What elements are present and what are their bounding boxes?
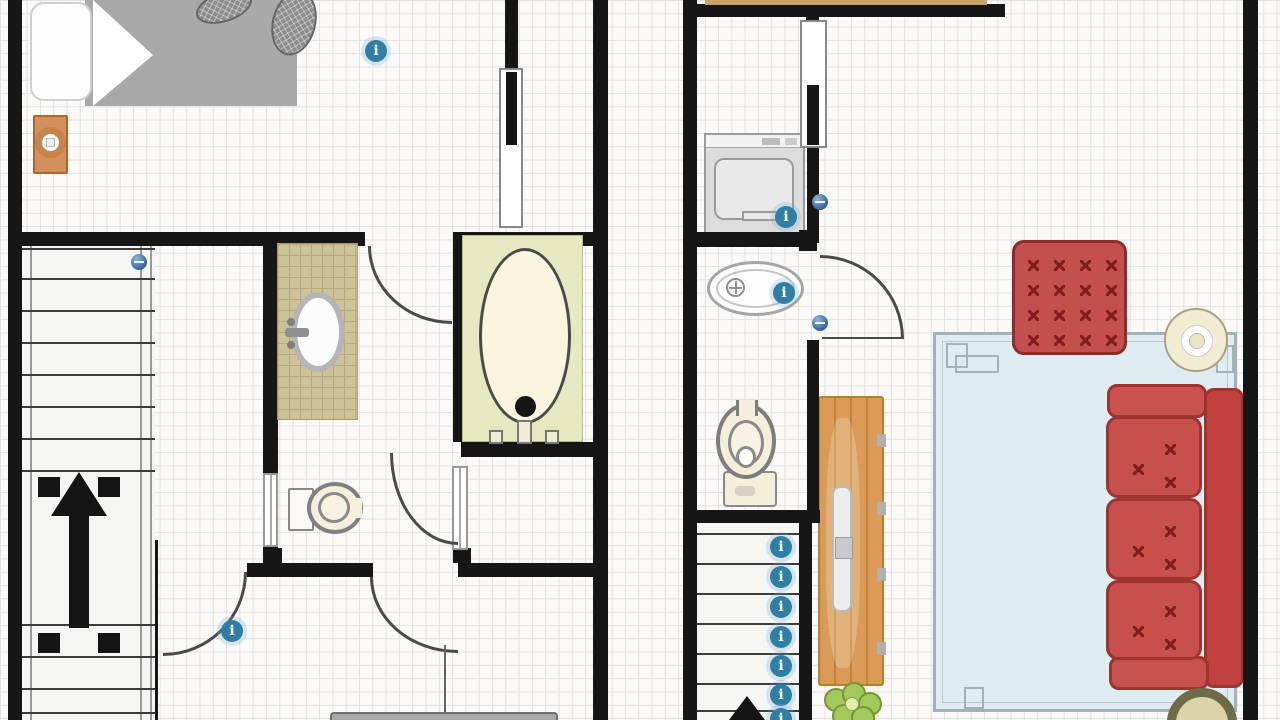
stair-tread bbox=[22, 342, 155, 344]
stair-tread bbox=[22, 688, 155, 690]
wall bbox=[263, 246, 278, 473]
plant[interactable] bbox=[818, 680, 882, 720]
sofa-armrest bbox=[1109, 656, 1209, 690]
tub-fixture bbox=[489, 430, 503, 444]
stair-tread bbox=[22, 310, 155, 312]
door-line bbox=[459, 468, 461, 548]
faucet-icon bbox=[285, 328, 309, 337]
wall bbox=[247, 563, 373, 577]
sofa-armrest bbox=[1107, 384, 1207, 418]
stair-tread bbox=[22, 248, 155, 250]
pocket-door[interactable] bbox=[263, 473, 278, 547]
desk-handle bbox=[877, 568, 886, 581]
chair-seat bbox=[46, 138, 55, 147]
wall bbox=[683, 510, 820, 523]
rug-corner-mark bbox=[955, 355, 999, 373]
wall bbox=[683, 0, 697, 720]
wall bbox=[264, 548, 282, 564]
desk-handle bbox=[877, 434, 886, 447]
sofa-cushion bbox=[1106, 498, 1202, 580]
tub-faucet bbox=[517, 420, 532, 444]
stair-tread bbox=[22, 278, 155, 280]
wall bbox=[593, 0, 608, 720]
stair-stringer bbox=[150, 246, 152, 720]
console-table[interactable] bbox=[330, 712, 558, 720]
basin-faucet-icon bbox=[726, 278, 745, 297]
sliding-door-leaf bbox=[807, 85, 819, 145]
stair-tread bbox=[22, 374, 155, 376]
round-side-table[interactable] bbox=[1164, 308, 1228, 372]
door-swing[interactable] bbox=[368, 246, 452, 324]
stair-stringer bbox=[30, 246, 32, 720]
handle-dot[interactable] bbox=[812, 194, 828, 210]
wall bbox=[8, 0, 22, 720]
wall bbox=[799, 230, 817, 251]
info-icon[interactable]: i bbox=[770, 684, 792, 706]
wall bbox=[799, 523, 812, 720]
stair-tread bbox=[696, 593, 799, 595]
info-icon[interactable]: i bbox=[770, 626, 792, 648]
desk-handle bbox=[877, 502, 886, 515]
toilet[interactable] bbox=[716, 400, 778, 510]
door-swing-chord bbox=[822, 337, 904, 339]
faucet-knob bbox=[287, 341, 295, 349]
info-icon[interactable]: i bbox=[221, 620, 243, 642]
tv-desk[interactable] bbox=[818, 396, 884, 686]
toilet-seat bbox=[318, 492, 350, 523]
three-seat-sofa[interactable] bbox=[1106, 384, 1246, 690]
floor-plan-canvas: i i bbox=[0, 0, 1280, 720]
toilet-flush bbox=[736, 446, 756, 468]
sofa-backrest bbox=[1204, 388, 1244, 688]
rug-corner-mark bbox=[964, 687, 984, 709]
desk-chair[interactable] bbox=[35, 127, 66, 158]
door-line bbox=[270, 475, 272, 545]
info-icon[interactable]: i bbox=[365, 40, 387, 62]
info-icon[interactable]: i bbox=[770, 655, 792, 677]
bed-pillow bbox=[30, 2, 92, 101]
arrow-bracket bbox=[38, 633, 60, 653]
arrow-head bbox=[717, 696, 777, 720]
tub-fixture bbox=[545, 430, 559, 444]
handle-dot[interactable] bbox=[812, 315, 828, 331]
wall bbox=[807, 340, 819, 512]
shower-knob bbox=[785, 138, 797, 145]
double-bed[interactable] bbox=[25, 0, 297, 106]
door-swing[interactable] bbox=[163, 572, 247, 656]
sofa-cushion bbox=[1106, 580, 1202, 660]
toilet-opening bbox=[736, 400, 758, 416]
stair-tread bbox=[22, 656, 155, 658]
tub-drain bbox=[515, 396, 536, 417]
stairs-up-arrow bbox=[38, 472, 122, 656]
sofa-cushion bbox=[1106, 416, 1202, 498]
stair-tread bbox=[22, 712, 155, 714]
info-icon[interactable]: i bbox=[770, 566, 792, 588]
wall bbox=[683, 4, 1005, 17]
info-icon[interactable]: i bbox=[773, 282, 795, 304]
shower-knob bbox=[762, 138, 780, 145]
toilet-opening bbox=[350, 498, 362, 518]
wall bbox=[461, 442, 593, 457]
toilet[interactable] bbox=[288, 482, 366, 538]
info-icon[interactable]: i bbox=[770, 536, 792, 558]
info-icon[interactable]: i bbox=[775, 206, 797, 228]
info-icon[interactable]: i bbox=[770, 596, 792, 618]
arrow-bracket bbox=[98, 633, 120, 653]
door-swing[interactable] bbox=[820, 255, 904, 339]
stair-tread bbox=[696, 533, 799, 535]
wall bbox=[505, 0, 518, 70]
stair-tread bbox=[696, 563, 799, 565]
stair-stringer bbox=[140, 246, 142, 720]
wall bbox=[458, 563, 593, 577]
tv-stand bbox=[835, 537, 853, 559]
toilet-tank-mark bbox=[735, 486, 755, 496]
door-swing[interactable] bbox=[390, 453, 458, 545]
wall bbox=[1243, 0, 1258, 720]
handle-dot[interactable] bbox=[131, 254, 147, 270]
stair-tread bbox=[696, 623, 799, 625]
stair-tread bbox=[22, 406, 155, 408]
plant-center bbox=[845, 697, 859, 711]
bathtub[interactable] bbox=[462, 235, 583, 442]
vanity-counter[interactable] bbox=[277, 243, 358, 420]
stair-tread bbox=[22, 438, 155, 440]
arrow-shaft bbox=[69, 510, 89, 628]
sliding-door-leaf bbox=[506, 72, 517, 145]
desk-handle bbox=[877, 642, 886, 655]
door-leaf-line bbox=[444, 645, 446, 720]
top-shelf-strip bbox=[705, 0, 987, 5]
wall bbox=[453, 548, 471, 563]
faucet-knob bbox=[287, 318, 295, 326]
table-hole bbox=[1189, 333, 1205, 349]
tufted-ottoman[interactable] bbox=[1012, 240, 1127, 355]
wall bbox=[683, 232, 803, 247]
door-swing[interactable] bbox=[370, 577, 458, 653]
